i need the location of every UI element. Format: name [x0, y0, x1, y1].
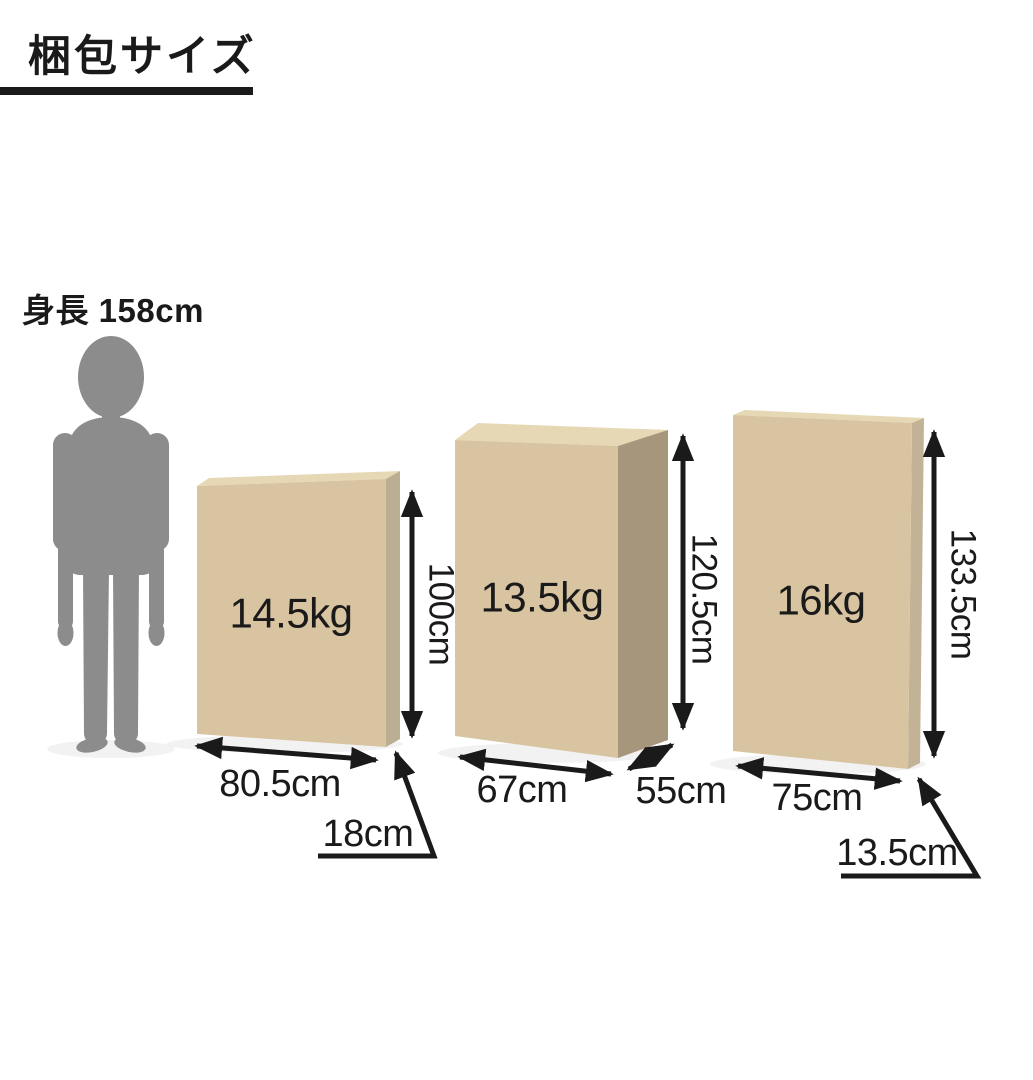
person-shadow: [47, 740, 175, 758]
box3: 16kg 133.5cm 75cm 13.5cm: [733, 410, 983, 876]
box2-height-label: 120.5cm: [685, 534, 724, 665]
title-underline: [0, 87, 253, 95]
person-torso: [67, 417, 155, 575]
person-right-leg: [113, 569, 139, 744]
person-height-label: 身長 158cm: [22, 292, 204, 329]
box1-width-label: 80.5cm: [219, 763, 341, 805]
person-left-hand: [58, 620, 74, 646]
page-title: 梱包サイズ: [28, 33, 257, 81]
person-left-leg: [83, 569, 109, 744]
box1: 14.5kg 100cm 80.5cm 18cm: [197, 471, 461, 856]
person-left-forearm: [58, 541, 73, 629]
packaging-size-infographic: 梱包サイズ 身長 158cm 14.5kg 100cm 80.5cm 18cm: [0, 0, 1033, 1080]
box2-weight-label: 13.5kg: [480, 574, 603, 621]
box1-weight-label: 14.5kg: [229, 590, 352, 637]
person-silhouette: [47, 336, 175, 758]
box2-side-face: [618, 430, 668, 758]
person-right-hand: [149, 620, 165, 646]
box2-depth-label: 55cm: [636, 770, 727, 812]
box3-weight-label: 16kg: [776, 577, 865, 624]
box1-depth-label: 18cm: [323, 813, 414, 855]
person-hair: [78, 336, 144, 418]
box1-side-face: [386, 471, 400, 747]
person-right-arm: [145, 433, 169, 551]
box3-height-label: 133.5cm: [944, 529, 983, 660]
box1-height-label: 100cm: [422, 563, 461, 666]
person-right-forearm: [149, 541, 164, 629]
box3-width-label: 75cm: [772, 777, 863, 819]
box3-depth-label: 13.5cm: [836, 832, 958, 874]
person-left-arm: [53, 433, 77, 551]
diagram-canvas: 梱包サイズ 身長 158cm 14.5kg 100cm 80.5cm 18cm: [0, 0, 1033, 1080]
box2-width-label: 67cm: [477, 769, 568, 811]
